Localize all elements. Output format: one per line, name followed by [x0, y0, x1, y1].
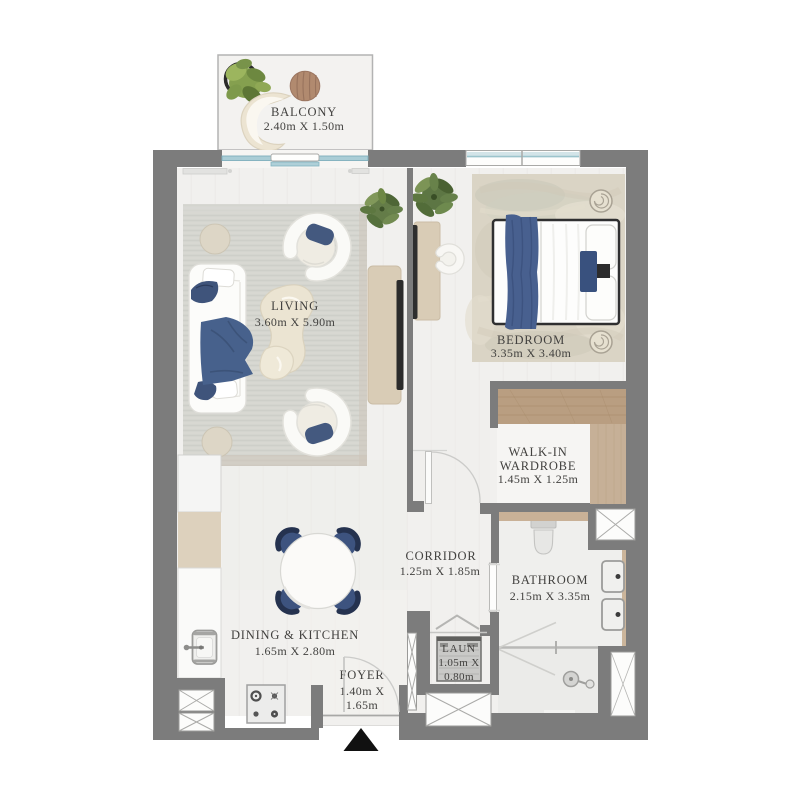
svg-text:1.65m: 1.65m: [346, 698, 379, 712]
svg-text:1.45m X 1.25m: 1.45m X 1.25m: [498, 472, 579, 486]
svg-text:1.65m X 2.80m: 1.65m X 2.80m: [255, 644, 336, 658]
svg-text:LAUN: LAUN: [442, 643, 476, 655]
svg-text:CORRIDOR: CORRIDOR: [406, 549, 477, 563]
svg-text:DINING & KITCHEN: DINING & KITCHEN: [231, 628, 359, 642]
svg-text:BATHROOM: BATHROOM: [512, 573, 589, 587]
svg-text:BALCONY: BALCONY: [271, 105, 337, 119]
svg-text:1.25m X 1.85m: 1.25m X 1.85m: [400, 564, 481, 578]
svg-text:BEDROOM: BEDROOM: [497, 333, 565, 347]
svg-text:LIVING: LIVING: [271, 299, 319, 313]
svg-text:2.15m X 3.35m: 2.15m X 3.35m: [510, 589, 591, 603]
svg-text:WARDROBE: WARDROBE: [500, 459, 577, 473]
svg-text:2.40m X 1.50m: 2.40m X 1.50m: [264, 119, 345, 133]
svg-text:0.80m: 0.80m: [444, 671, 474, 683]
svg-text:FOYER: FOYER: [340, 668, 385, 682]
svg-text:1.05m X: 1.05m X: [438, 657, 479, 669]
svg-text:WALK-IN: WALK-IN: [508, 445, 567, 459]
svg-text:3.35m X 3.40m: 3.35m X 3.40m: [491, 346, 572, 360]
svg-text:3.60m X 5.90m: 3.60m X 5.90m: [255, 315, 336, 329]
svg-text:1.40m X: 1.40m X: [340, 684, 385, 698]
